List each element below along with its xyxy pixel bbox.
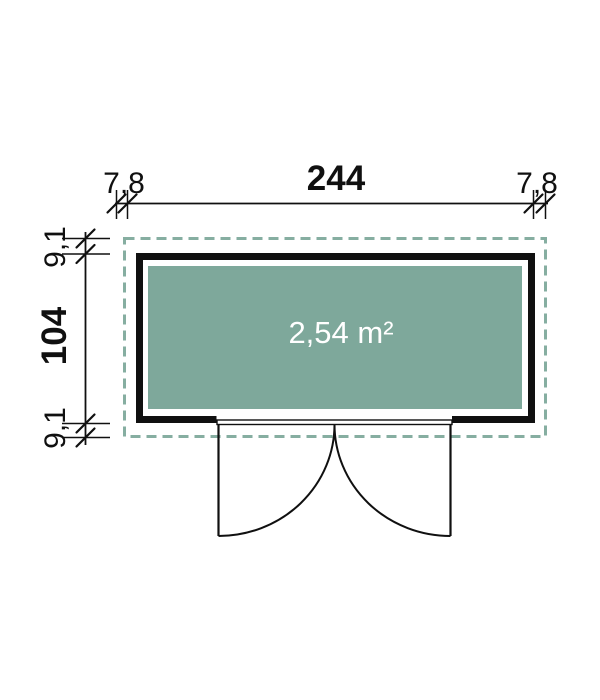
- floor-area-label: 2,54 m²: [288, 315, 393, 350]
- bottom-overhang-label: 9,1: [39, 407, 72, 449]
- floorplan-svg: 2,54 m² 7,8 244 7,8 9,1: [0, 0, 600, 700]
- floorplan-diagram: 2,54 m² 7,8 244 7,8 9,1: [0, 0, 600, 700]
- top-overhang-label: 9,1: [39, 226, 72, 268]
- left-overhang-label: 7,8: [103, 167, 145, 200]
- door-threshold: [217, 420, 452, 425]
- right-door-swing-arc: [335, 425, 451, 537]
- total-width-label: 244: [307, 159, 366, 198]
- total-depth-label: 104: [35, 306, 74, 365]
- left-door-swing-arc: [219, 425, 335, 537]
- right-overhang-label: 7,8: [516, 167, 558, 200]
